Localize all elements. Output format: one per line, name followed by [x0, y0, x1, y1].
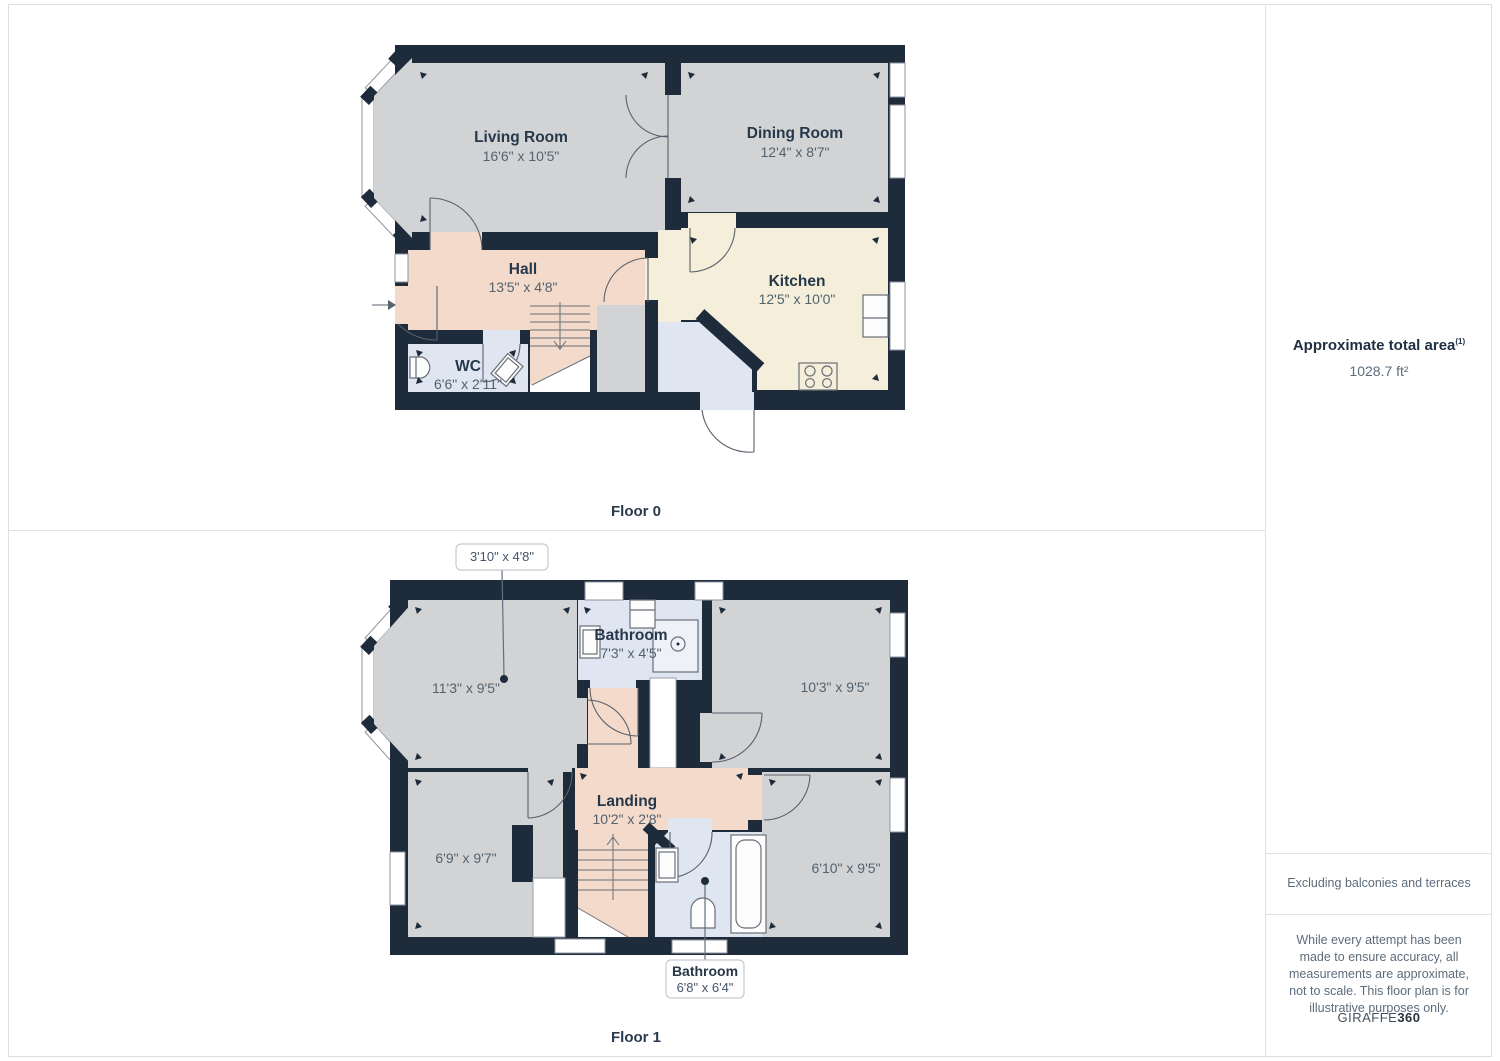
total-area-block: Approximate total area(1) 1028.7 ft²: [1266, 337, 1492, 379]
room-dims: 6'9" x 9'7": [435, 850, 496, 866]
floors-divider: [8, 530, 1265, 531]
total-area-title: Approximate total area(1): [1266, 337, 1492, 354]
airing-cupboard: [650, 678, 676, 768]
floor0-label: Floor 0: [611, 503, 661, 520]
room-label: Bathroom: [594, 627, 667, 644]
callout-name: Bathroom: [672, 963, 738, 979]
room-dims: 13'5" x 4'8": [489, 279, 558, 295]
giraffe360-logo: GIRAFFE360: [1266, 1010, 1492, 1025]
understairs: [597, 305, 645, 392]
callout-dims: 3'10" x 4'8": [470, 549, 534, 564]
info-sidebar: Approximate total area(1) 1028.7 ft² Exc…: [1266, 4, 1492, 1057]
toilet-icon: [691, 898, 715, 928]
floor1-label: Floor 1: [611, 1029, 661, 1046]
kitchen-counter: [863, 295, 888, 337]
wc-toilet-icon: [410, 357, 430, 378]
floor1-plan: 3'10" x 4'8" Bathroom 6'8" x 6'4" 11'3" …: [0, 530, 1265, 1061]
room-dims: 6'6" x 2'11": [434, 376, 502, 392]
floor0-plan: Living Room 16'6" x 10'5" Dining Room 12…: [0, 0, 1265, 530]
room-dims: 11'3" x 9'5": [432, 680, 500, 696]
cupboard: [533, 878, 565, 937]
room-dims: 12'4" x 8'7": [761, 144, 830, 160]
sidebar-rule: [1266, 853, 1492, 854]
brand-name: GIRAFFE: [1337, 1010, 1397, 1025]
room-dims: 10'2" x 2'8": [593, 811, 662, 827]
disclaimer-text: While every attempt has been made to ens…: [1279, 932, 1479, 1017]
callout-dims: 6'8" x 6'4": [677, 980, 734, 995]
entrance-arrow: [372, 300, 396, 310]
room-label: Kitchen: [769, 273, 826, 290]
room-dims: 16'6" x 10'5": [483, 148, 560, 164]
room-dims: 12'5" x 10'0": [759, 291, 836, 307]
sidebar-rule: [1266, 914, 1492, 915]
room-label: Living Room: [474, 129, 568, 146]
room-label: WC: [455, 358, 481, 375]
room-dims: 7'3" x 4'5": [600, 645, 661, 661]
total-area-label: Approximate total area: [1293, 337, 1456, 354]
brand-suffix: 360: [1397, 1010, 1420, 1025]
excluding-note: Excluding balconies and terraces: [1266, 876, 1492, 890]
total-area-footnote: (1): [1455, 337, 1465, 346]
floorplan-page: Living Room 16'6" x 10'5" Dining Room 12…: [0, 0, 1500, 1061]
room-label: Landing: [597, 793, 657, 810]
total-area-value: 1028.7 ft²: [1266, 363, 1492, 379]
room-dims: 6'10" x 9'5": [812, 860, 881, 876]
room-label: Dining Room: [747, 125, 843, 142]
room-dims: 10'3" x 9'5": [801, 679, 870, 695]
room-label: Hall: [509, 261, 537, 278]
room-bedroom-back-right: [762, 772, 890, 937]
